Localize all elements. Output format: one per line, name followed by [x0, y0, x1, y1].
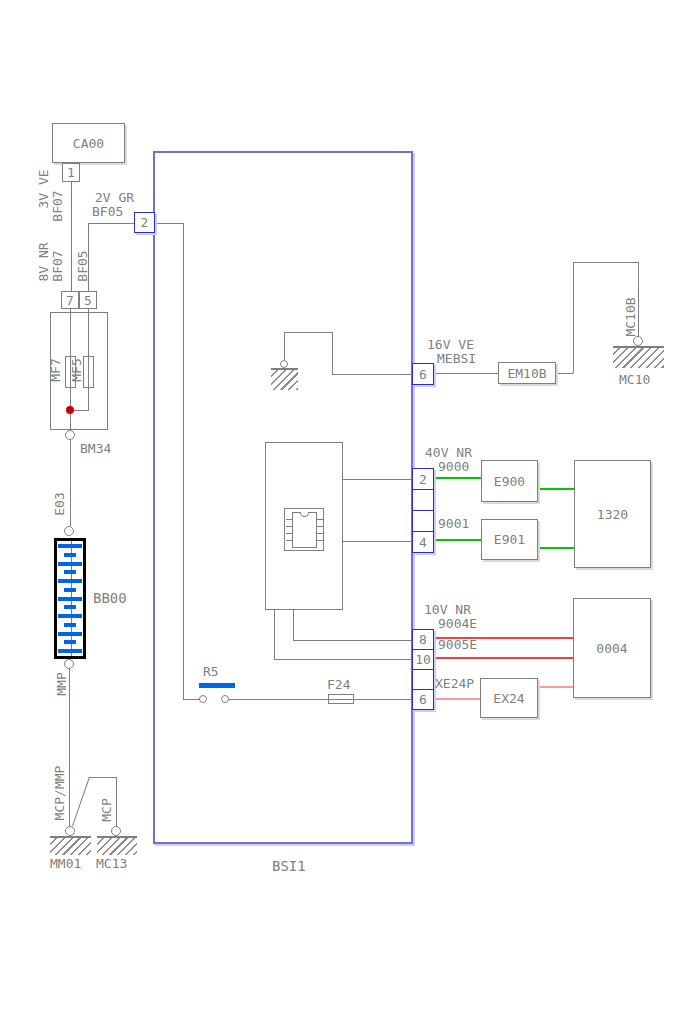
fuse-mf5-symbol	[83, 356, 94, 388]
battery-cell	[58, 632, 82, 636]
battery-cell	[58, 614, 82, 618]
bsi-pin2-bf05: 2	[134, 212, 155, 233]
wire-label-mebsi: MEBSI	[437, 352, 476, 366]
ex24-box: EX24	[480, 678, 538, 718]
wire-mc10-top	[573, 262, 639, 263]
battery-cell	[64, 553, 76, 557]
battery-cell	[64, 605, 76, 609]
wire-label-9000: 9000	[438, 460, 469, 474]
bsi-pin2: 2	[412, 468, 434, 490]
bsi-pin6-xe24: 6	[412, 689, 434, 710]
battery-cell	[58, 579, 82, 583]
wire-mc10-up	[573, 262, 574, 373]
ic-pin-l2	[286, 526, 292, 527]
f24-label: F24	[327, 678, 350, 692]
wire-9005e	[434, 657, 573, 659]
wire-label-9005e: 9005E	[438, 638, 477, 652]
ca00-label: CA00	[73, 136, 104, 151]
bsi-pin-blank-3	[412, 669, 434, 690]
wire-label-bf07-mid: BF07	[51, 221, 65, 311]
wire-xe24p	[434, 698, 480, 700]
mc10-label: MC10	[619, 373, 650, 387]
e03-label: E03	[53, 459, 67, 549]
box-1320: 1320	[574, 460, 651, 568]
wire-label-10v-nr: 10V NR	[424, 603, 471, 617]
ic-pin-r3	[317, 533, 323, 534]
em10b-box: EM10B	[498, 362, 556, 384]
battery-cell	[58, 597, 82, 601]
wiring-diagram-canvas: CA00 1 7 5 MF7 MF5	[0, 0, 700, 1020]
ic-pin-r1	[317, 519, 323, 520]
wire-label-40v-nr: 40V NR	[425, 446, 472, 460]
wire-label-bf05-top: BF05	[92, 205, 123, 219]
bsi-pin10: 10	[412, 649, 434, 670]
wire-bf05-horiz	[88, 223, 134, 224]
wire-mc13-diagonal	[72, 777, 90, 826]
bsi-pin4: 4	[412, 531, 434, 553]
battery-cell	[64, 623, 76, 627]
fuse-f24-symbol	[328, 694, 354, 704]
mm01-label: MM01	[50, 857, 81, 871]
wire-e900-1320	[538, 488, 574, 490]
e900-box: E900	[481, 460, 538, 502]
ic-pin-r4	[317, 540, 323, 541]
relay-r5-contact-left	[199, 695, 207, 703]
bm34-label: BM34	[80, 442, 111, 456]
wire-em10b-out	[556, 373, 573, 374]
wire-9000	[434, 477, 481, 479]
relay-r5-contact-right	[221, 695, 229, 703]
battery-cell	[58, 562, 82, 566]
battery-cell	[64, 570, 76, 574]
ca00-box: CA00	[52, 123, 125, 163]
box-0004: 0004	[573, 598, 651, 698]
ic-pin-l3	[286, 533, 292, 534]
wire-9001	[434, 539, 481, 541]
wire-label-xe24p: XE24P	[435, 677, 474, 691]
wire-mc13-down	[116, 777, 117, 826]
terminal-bm34	[65, 430, 75, 440]
bsi-pin8: 8	[412, 629, 434, 650]
relay-r5-bar	[199, 683, 235, 688]
junction-dot	[66, 406, 74, 414]
ground-mc10	[613, 346, 664, 368]
wire-label-16v-ve: 16V VE	[427, 338, 474, 352]
wire-mc10-down	[638, 262, 639, 336]
wire-label-2v-gr: 2V GR	[95, 191, 134, 205]
bsi1-label: BSI1	[272, 859, 306, 873]
e901-box: E901	[481, 519, 538, 560]
r5-label: R5	[203, 665, 219, 679]
ground-mebsi	[271, 368, 298, 390]
wire-label-9004e: 9004E	[438, 617, 477, 631]
ic-pin-r2	[317, 526, 323, 527]
ic-chip-body	[292, 512, 317, 548]
bb00-label: BB00	[93, 591, 127, 605]
mmp-label: MMP	[55, 639, 69, 729]
terminal-mebsi-ground	[280, 360, 288, 368]
wire-e901-1320	[538, 547, 574, 549]
mcp-label: MCP	[100, 765, 114, 855]
wire-label-9001: 9001	[438, 517, 469, 531]
wire-bm34-battery	[70, 440, 71, 526]
ground-mm01	[50, 836, 91, 855]
bsi-pin6-mebsi: 6	[412, 363, 434, 385]
wire-mebsi-em10b	[434, 373, 498, 374]
mc13-label: MC13	[96, 857, 127, 871]
ic-pin-l1	[286, 519, 292, 520]
wire-label-8v-nr: 8V NR	[37, 217, 51, 307]
fuse-mf7-label: MF7	[49, 325, 63, 415]
fuse-mf5-label: MF5	[70, 325, 84, 415]
bsi-pin-blank-2	[412, 510, 434, 532]
wire-battery-ground	[69, 668, 70, 826]
mcp-mmp-label: MCP/MMP	[53, 748, 67, 838]
wire-ex24-0004	[538, 686, 573, 688]
wire-ca00-down	[71, 182, 72, 291]
ic-pin-l4	[286, 540, 292, 541]
wire-label-bf05-mid: BF05	[76, 221, 90, 311]
mc10b-label: MC10B	[624, 272, 638, 362]
bsi-pin-blank-1	[412, 489, 434, 511]
battery-cell	[64, 588, 76, 592]
